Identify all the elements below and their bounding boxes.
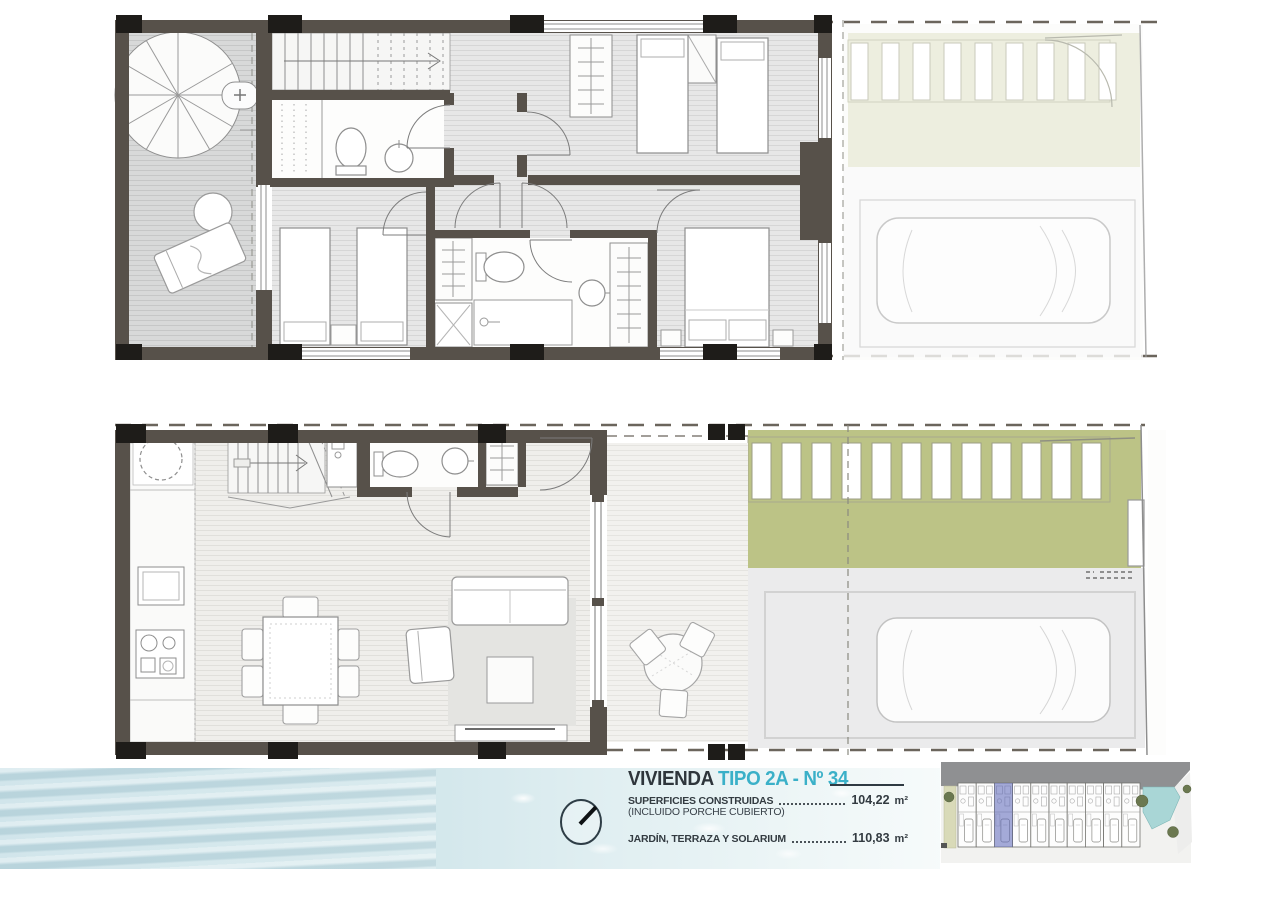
title-main: VIVIENDA bbox=[628, 768, 713, 790]
ground-floor-plan bbox=[0, 400, 1280, 770]
bed bbox=[280, 228, 330, 345]
toilet bbox=[476, 252, 524, 282]
sliding-door bbox=[592, 495, 604, 708]
nightstand bbox=[661, 330, 681, 346]
nightstand bbox=[773, 330, 793, 346]
area-row: SUPERFICIES CONSTRUIDAS 104,22 m² bbox=[628, 793, 908, 807]
area-note: (INCLUIDO PORCHE CUBIERTO) bbox=[628, 806, 785, 818]
page-title: VIVIENDA TIPO 2A - Nº 34 bbox=[628, 768, 848, 791]
wardrobe bbox=[610, 243, 648, 347]
car-outline bbox=[877, 618, 1110, 722]
area-unit: m² bbox=[895, 795, 908, 807]
toilet bbox=[336, 128, 366, 175]
area-value: 104,22 bbox=[851, 793, 889, 807]
cooktop bbox=[136, 630, 184, 678]
garden-faded bbox=[843, 20, 1146, 360]
double-bed bbox=[685, 228, 769, 347]
bathtub bbox=[474, 300, 572, 345]
area-leader bbox=[792, 841, 846, 843]
compass-icon bbox=[556, 796, 608, 848]
site-plan-thumbnail bbox=[940, 760, 1192, 878]
garden bbox=[748, 425, 1166, 755]
site-marker bbox=[941, 843, 947, 848]
staircase bbox=[272, 33, 450, 90]
covered-porch bbox=[607, 443, 748, 742]
bed bbox=[637, 35, 688, 153]
wardrobe bbox=[435, 238, 472, 300]
coffee-table bbox=[487, 657, 533, 703]
area-row: JARDÍN, TERRAZA Y SOLARIUM 110,83 m² bbox=[628, 831, 908, 845]
wardrobe bbox=[570, 35, 612, 117]
title-rule bbox=[830, 784, 904, 786]
car-outline bbox=[877, 218, 1110, 323]
oven bbox=[138, 567, 184, 605]
title-type: TIPO 2A - Nº 34 bbox=[718, 768, 848, 790]
sofa bbox=[452, 577, 568, 625]
bathroom-1 bbox=[272, 100, 444, 178]
bathroom-2 bbox=[435, 238, 648, 347]
kitchen bbox=[130, 433, 195, 742]
title-block: VIVIENDA TIPO 2A - Nº 34 SUPERFICIES CON… bbox=[628, 768, 920, 852]
area-leader bbox=[779, 803, 845, 805]
armchair bbox=[406, 626, 455, 684]
pergola-slats bbox=[851, 43, 1116, 100]
water-ripples bbox=[0, 768, 436, 869]
plan-sheet: VIVIENDA TIPO 2A - Nº 34 SUPERFICIES CON… bbox=[0, 0, 1280, 905]
tv-bench bbox=[455, 725, 567, 741]
site-unit-highlighted bbox=[994, 783, 1012, 847]
shower bbox=[435, 303, 472, 347]
area-unit: m² bbox=[895, 833, 908, 845]
upper-floor-plan bbox=[0, 0, 1280, 400]
bed bbox=[717, 38, 768, 153]
toilet bbox=[374, 451, 418, 477]
area-value: 110,83 bbox=[852, 831, 890, 845]
nightstand bbox=[331, 325, 356, 345]
site-units bbox=[958, 783, 1140, 847]
bed bbox=[357, 228, 407, 345]
area-label: JARDÍN, TERRAZA Y SOLARIUM bbox=[628, 833, 786, 845]
